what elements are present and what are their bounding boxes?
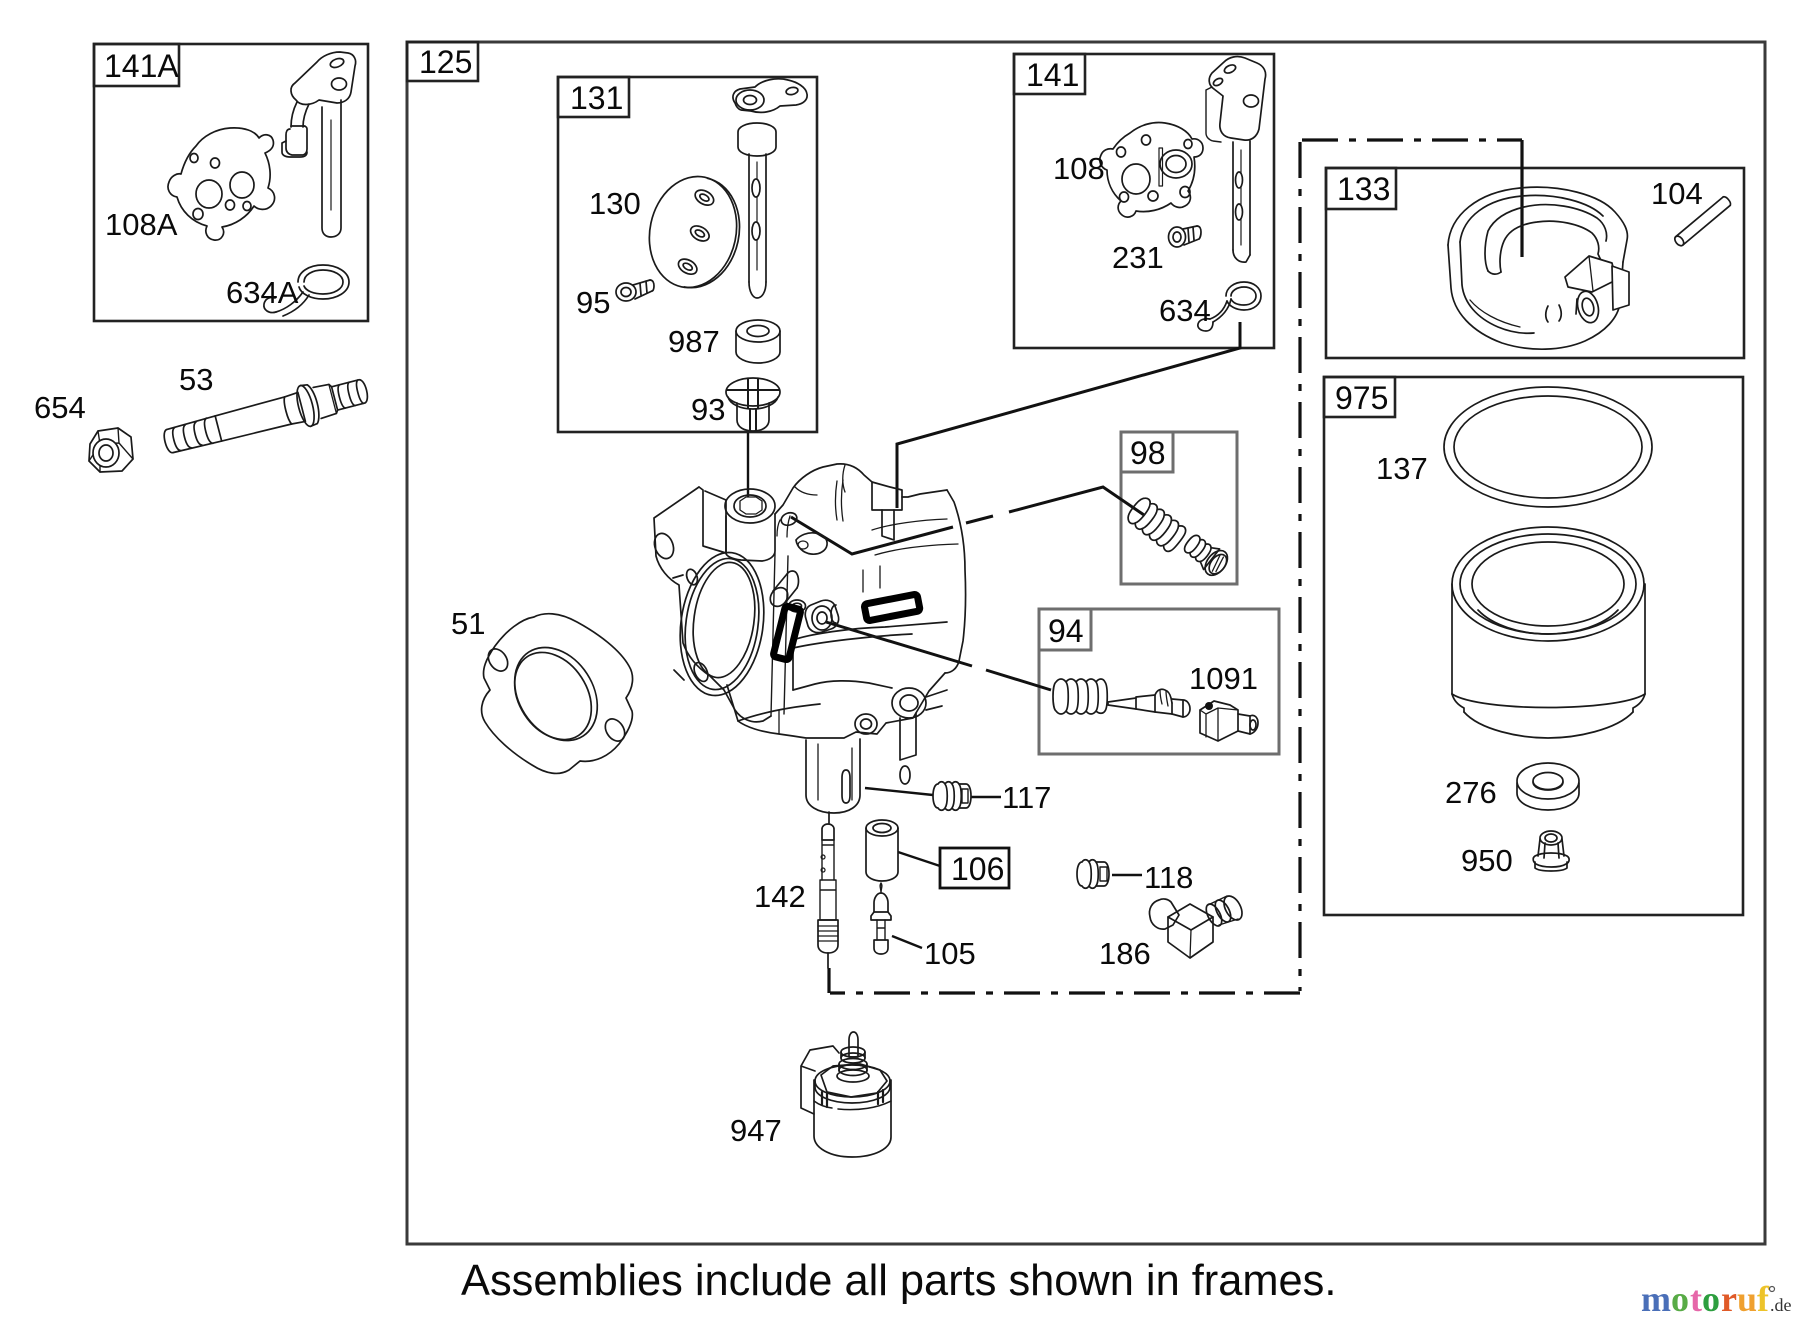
svg-text:95: 95 — [576, 285, 610, 320]
svg-text:142: 142 — [754, 879, 806, 914]
svg-text:u: u — [1737, 1279, 1757, 1319]
svg-text:51: 51 — [451, 606, 485, 641]
svg-text:141A: 141A — [104, 48, 179, 84]
svg-text:186: 186 — [1099, 936, 1151, 971]
svg-text:104: 104 — [1651, 176, 1703, 211]
svg-text:141: 141 — [1026, 57, 1079, 93]
svg-text:654: 654 — [34, 390, 86, 425]
svg-text:634A: 634A — [226, 275, 299, 310]
svg-text:130: 130 — [589, 186, 641, 221]
svg-text:f: f — [1757, 1279, 1770, 1319]
svg-text:93: 93 — [691, 392, 725, 427]
svg-text:108A: 108A — [105, 207, 178, 242]
svg-text:137: 137 — [1376, 451, 1428, 486]
svg-text:105: 105 — [924, 936, 976, 971]
svg-text:276: 276 — [1445, 775, 1497, 810]
svg-text:133: 133 — [1337, 171, 1390, 207]
svg-text:117: 117 — [1002, 780, 1051, 815]
svg-text:118: 118 — [1144, 860, 1193, 895]
svg-text:634: 634 — [1159, 293, 1211, 328]
svg-text:950: 950 — [1461, 843, 1513, 878]
svg-text:r: r — [1721, 1279, 1737, 1319]
svg-text:t: t — [1690, 1279, 1702, 1319]
svg-text:m: m — [1641, 1279, 1671, 1319]
svg-text:131: 131 — [570, 80, 623, 116]
svg-text:947: 947 — [730, 1113, 782, 1148]
svg-text:94: 94 — [1048, 613, 1084, 649]
svg-text:231: 231 — [1112, 240, 1164, 275]
svg-text:125: 125 — [419, 44, 472, 80]
svg-text:1091: 1091 — [1189, 661, 1258, 696]
svg-text:106: 106 — [951, 851, 1004, 887]
svg-text:975: 975 — [1335, 380, 1388, 416]
svg-text:108: 108 — [1053, 151, 1105, 186]
svg-text:98: 98 — [1130, 435, 1166, 471]
svg-text:53: 53 — [179, 362, 213, 397]
svg-text:o: o — [1671, 1279, 1689, 1319]
svg-text:o: o — [1702, 1279, 1720, 1319]
svg-text:.de: .de — [1770, 1295, 1792, 1315]
svg-text:Assemblies include all parts s: Assemblies include all parts shown in fr… — [461, 1257, 1336, 1305]
svg-text:987: 987 — [668, 324, 720, 359]
